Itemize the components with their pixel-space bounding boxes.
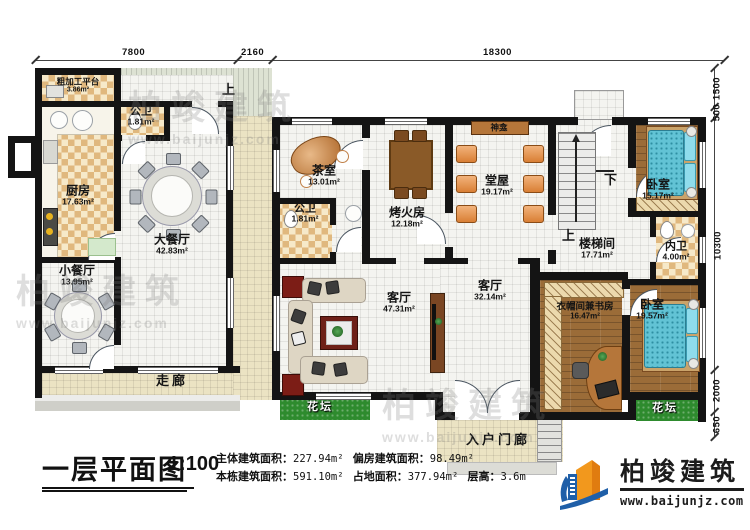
room-label-cloak-study: 衣帽间兼书房16.47m²	[556, 302, 613, 321]
stat-value: 591.10m²	[293, 471, 344, 483]
dim-label-7800: 7800	[122, 47, 145, 58]
bedside-lamp	[686, 126, 697, 137]
stat-label: 主体建筑面积：	[216, 453, 293, 465]
logo-icon	[556, 450, 616, 519]
room-label-living2: 客厅32.14m²	[474, 280, 506, 303]
staircase	[558, 132, 596, 230]
stat-value: 3.6m	[501, 471, 526, 483]
wall	[445, 117, 453, 213]
wall	[628, 279, 706, 285]
wall	[424, 258, 452, 264]
floor-plan: 7800 2160 18300 1500 500 10300 2000 650 …	[0, 0, 750, 530]
dim-label-2160: 2160	[241, 47, 264, 58]
window	[648, 118, 690, 125]
wall	[114, 107, 121, 231]
burner	[46, 213, 53, 220]
tv	[432, 304, 436, 360]
chair	[412, 187, 427, 199]
wall	[628, 211, 706, 217]
wash-basin	[345, 205, 362, 222]
room-label-tea-room: 茶室13.01m²	[308, 165, 340, 188]
dining-table-top	[151, 175, 193, 217]
room-label-bedroom2: 卧室19.57m²	[636, 299, 668, 322]
room-label-inner-wc: 内卫4.00m²	[663, 240, 690, 261]
burner	[46, 228, 53, 235]
kitchen-sink	[72, 110, 93, 131]
toilet	[660, 221, 674, 239]
stair-arrow-head	[572, 134, 580, 142]
stat-label: 偏房建筑面积：	[353, 453, 430, 465]
room-label-corridor: 走廊	[156, 374, 188, 388]
wall	[530, 258, 540, 420]
room-label-rough-platform: 粗加工平台3.86m²	[57, 77, 100, 94]
window	[273, 296, 280, 351]
room-label-fire-room: 烤火房12.18m²	[389, 207, 425, 230]
title-underline	[42, 487, 194, 489]
dimension-line-top	[35, 60, 725, 61]
stat-row-1: 主体建筑面积：227.94m² 偏房建筑面积：98.49m²	[216, 450, 474, 466]
bedside-lamp	[686, 187, 697, 198]
kitchen-sink	[50, 111, 68, 129]
dim-label-650: 650	[712, 411, 723, 439]
stat-label: 本栋建筑面积：	[216, 471, 293, 483]
logo-divider	[620, 488, 744, 491]
wall	[35, 68, 42, 398]
chair	[166, 153, 181, 165]
plant	[435, 318, 442, 325]
wall	[650, 217, 656, 237]
dim-label-10300: 10300	[713, 226, 724, 266]
armchair	[456, 145, 477, 163]
room-label-stair-room: 楼梯间17.71m²	[579, 238, 615, 261]
chair	[412, 130, 427, 142]
window	[316, 393, 371, 400]
wall	[272, 258, 336, 264]
logo-name: 柏竣建筑	[620, 452, 740, 488]
window	[699, 308, 706, 358]
tea-stool	[336, 150, 349, 163]
room-label-hall: 堂屋19.17m²	[481, 175, 513, 198]
room-label-big-dining: 大餐厅42.83m²	[154, 234, 190, 257]
plant	[332, 326, 343, 337]
dim-label-18300: 18300	[483, 47, 512, 58]
corner-cabinet	[282, 276, 304, 298]
wall	[226, 101, 233, 373]
armchair	[456, 175, 477, 193]
stat-label: 占地面积：	[353, 471, 408, 483]
room-label-bedroom1: 卧室15.17m²	[642, 179, 674, 202]
dim-label-2000: 2000	[712, 374, 723, 408]
company-logo: 柏竣建筑 www.baijunjz.com	[556, 450, 748, 520]
wall	[362, 117, 370, 138]
dining-table-small	[54, 292, 102, 340]
fire-table	[389, 140, 433, 190]
terrace-deck	[233, 68, 272, 116]
stair-arrow-line	[575, 142, 577, 222]
cushion	[307, 281, 322, 296]
side-passage	[233, 116, 272, 400]
armchair	[523, 205, 544, 223]
window	[273, 150, 280, 192]
chair	[72, 342, 87, 354]
page-title: 一层平面图	[42, 448, 187, 492]
room-label-entry-porch: 入户门廊	[466, 433, 530, 447]
chair	[129, 190, 141, 205]
wall	[114, 263, 121, 345]
chair	[205, 190, 217, 205]
dining-table	[142, 166, 202, 226]
bedside-lamp	[688, 299, 699, 310]
stat-value: 227.94m²	[293, 453, 344, 465]
scale-label: 1:100	[168, 453, 219, 476]
shrine-label: 神龛	[490, 123, 507, 132]
cushion	[325, 280, 340, 295]
wall	[35, 68, 121, 75]
armchair	[456, 205, 477, 223]
wall	[622, 315, 630, 400]
corridor-step	[35, 401, 240, 411]
outdoor-up-label: 上	[222, 83, 238, 97]
pillow	[686, 308, 698, 334]
rear-landing	[574, 90, 624, 120]
logo-site: www.baijunjz.com	[620, 494, 744, 508]
cushion	[311, 361, 326, 376]
wall	[628, 117, 636, 168]
dining-table-top	[61, 299, 95, 333]
chimney-hole	[15, 143, 31, 171]
wall	[540, 272, 628, 280]
stat-value: 98.49m²	[430, 453, 474, 465]
window	[699, 142, 706, 188]
room-label-kitchen: 厨房17.63m²	[62, 185, 94, 208]
plant	[598, 352, 607, 361]
room-label-living1: 客厅47.31m²	[383, 292, 415, 315]
window	[227, 146, 234, 190]
stair-up-label: 上	[562, 229, 578, 243]
chair	[394, 130, 409, 142]
stat-label: 层高：	[468, 471, 501, 483]
room-label-small-dining: 小餐厅13.95m²	[59, 265, 95, 288]
stair-down-label: 下	[604, 173, 620, 187]
wash-basin	[681, 224, 695, 238]
corridor-floor	[42, 373, 233, 395]
bedside-lamp	[688, 358, 699, 369]
desk-chair	[572, 362, 589, 379]
window	[385, 118, 427, 125]
wall	[362, 170, 370, 264]
wall	[548, 117, 556, 215]
wall	[452, 258, 468, 264]
room-label-wc1: 公卫1.81m²	[128, 105, 155, 126]
chair	[394, 187, 409, 199]
wall	[548, 250, 556, 264]
stat-value: 377.94m²	[408, 471, 459, 483]
wall	[146, 135, 170, 141]
wall	[364, 258, 396, 264]
room-label-flowerbed-left: 花坛	[307, 401, 333, 413]
cushion	[333, 362, 348, 377]
armchair	[523, 175, 544, 193]
window	[292, 118, 332, 125]
wall	[628, 392, 706, 400]
window	[699, 237, 706, 263]
kitchen-mat	[88, 238, 116, 256]
room-label-wc2: 公卫1.81m²	[292, 202, 319, 223]
wall	[435, 412, 455, 420]
wall	[622, 279, 630, 289]
stat-row-2: 本栋建筑面积：591.10m² 占地面积：377.94m² 层高：3.6m	[216, 468, 526, 484]
room-label-flowerbed-right: 花坛	[652, 402, 678, 414]
dim-label-500: 500	[712, 99, 723, 127]
armchair	[523, 145, 544, 163]
wall	[330, 198, 336, 225]
kitchen-appliance	[43, 140, 58, 164]
window	[227, 278, 234, 328]
